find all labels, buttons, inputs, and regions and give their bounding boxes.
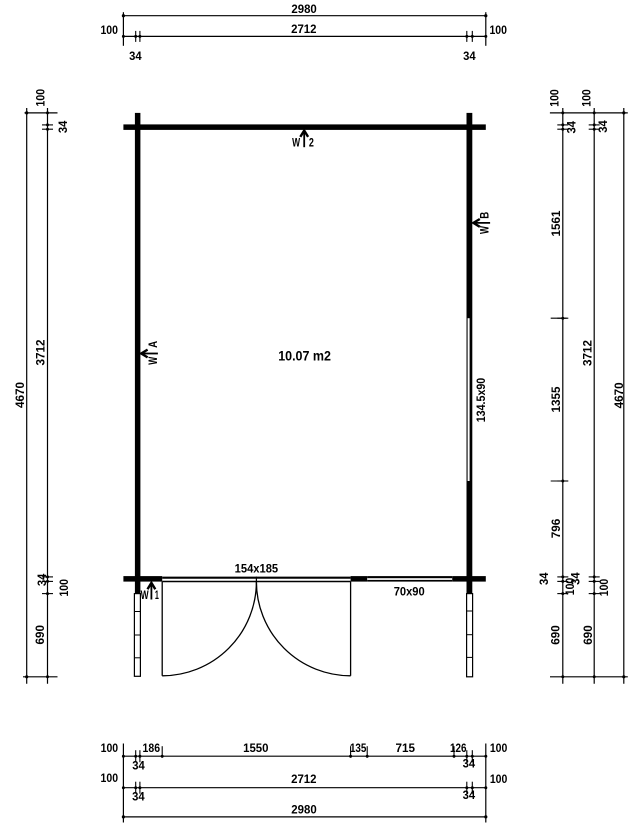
svg-text:1550: 1550 [243,741,269,755]
svg-text:70x90: 70x90 [394,584,425,598]
svg-text:4670: 4670 [612,382,626,408]
svg-text:34: 34 [56,120,70,133]
svg-text:2980: 2980 [291,802,317,816]
svg-text:34: 34 [596,120,610,133]
svg-text:690: 690 [581,625,595,645]
svg-text:34: 34 [35,573,49,586]
svg-text:134.5x90: 134.5x90 [474,377,488,422]
svg-text:34: 34 [463,49,476,63]
svg-text:2712: 2712 [291,22,317,36]
svg-text:34: 34 [537,572,551,585]
svg-text:34: 34 [463,756,476,770]
svg-text:100: 100 [597,578,611,596]
svg-text:4670: 4670 [13,382,27,408]
svg-text:100: 100 [100,23,118,37]
svg-text:2: 2 [309,136,314,150]
svg-text:135: 135 [350,741,367,755]
svg-text:34: 34 [568,572,582,585]
svg-text:3712: 3712 [581,340,595,366]
svg-text:100: 100 [101,771,119,785]
svg-text:1561: 1561 [549,210,563,236]
svg-text:690: 690 [33,625,47,645]
svg-text:W: W [141,588,149,602]
svg-text:100: 100 [490,772,508,786]
svg-text:34: 34 [129,49,142,63]
svg-text:100: 100 [489,23,507,37]
svg-text:1: 1 [155,588,159,602]
svg-text:2712: 2712 [291,772,317,786]
svg-text:100: 100 [548,89,562,107]
svg-text:690: 690 [548,625,562,645]
svg-text:100: 100 [34,89,48,107]
svg-text:A: A [146,341,160,348]
svg-text:34: 34 [463,788,476,802]
svg-text:100: 100 [490,741,508,755]
svg-text:34: 34 [132,758,145,772]
svg-text:100: 100 [580,89,594,107]
svg-text:715: 715 [396,741,416,755]
svg-text:3712: 3712 [34,339,48,365]
svg-text:100: 100 [101,741,119,755]
svg-text:W: W [146,356,160,364]
svg-text:126: 126 [450,741,467,755]
svg-text:796: 796 [549,518,563,538]
svg-text:34: 34 [132,789,145,803]
svg-text:W: W [292,136,300,150]
svg-text:B: B [477,211,491,218]
svg-text:2980: 2980 [291,2,317,16]
svg-text:100: 100 [57,579,71,597]
svg-text:154x185: 154x185 [235,562,279,576]
svg-text:1355: 1355 [549,386,563,412]
svg-text:186: 186 [143,741,161,755]
svg-text:10.07 m2: 10.07 m2 [278,348,331,363]
svg-text:34: 34 [565,121,579,134]
